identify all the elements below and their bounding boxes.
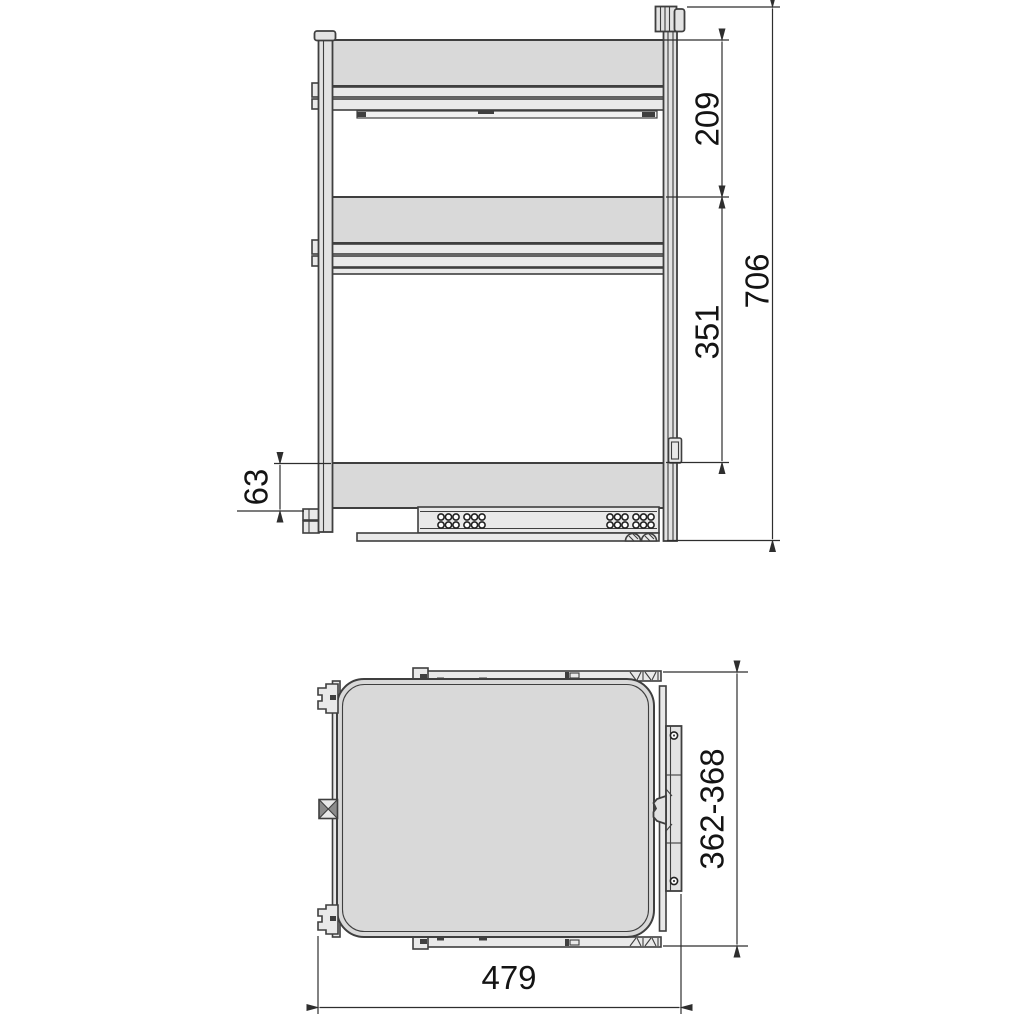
plan-basket	[337, 679, 654, 937]
basket-top	[312, 40, 664, 118]
slide-rail-middle	[331, 268, 664, 274]
plan-wall-rail-bar	[654, 726, 682, 891]
base-unit	[303, 463, 664, 541]
plan-clip-top-left	[318, 684, 338, 713]
plan-clip-bottom-left	[318, 905, 338, 934]
rail-bracket-tab	[654, 796, 667, 824]
dim-label-351: 351	[689, 304, 726, 359]
rail-lower-clip	[669, 438, 682, 463]
rail-top-bracket	[656, 7, 685, 32]
dim-label-width: 479	[481, 959, 536, 996]
plan-view: 362-368 479	[318, 668, 748, 1014]
front-bracket	[303, 509, 319, 533]
slide-rail-top	[357, 111, 657, 118]
technical-drawing-page: 209 351 706 63	[0, 0, 1024, 1024]
dimension-63: 63	[237, 464, 331, 512]
plan-clip-middle-left	[319, 800, 338, 819]
dim-label-706: 706	[739, 253, 776, 308]
dim-label-209: 209	[689, 91, 726, 146]
basket-middle	[312, 197, 664, 274]
dim-label-depth: 362-368	[694, 748, 731, 869]
front-elevation-view: 209 351 706 63	[237, 7, 780, 542]
front-post	[315, 31, 336, 532]
dim-label-63: 63	[238, 469, 275, 506]
pullout-organizer-drawing: 209 351 706 63	[0, 0, 1024, 1024]
dimension-706: 706	[667, 7, 780, 541]
lower-slide-profile	[357, 533, 659, 541]
post-cap	[315, 31, 336, 41]
